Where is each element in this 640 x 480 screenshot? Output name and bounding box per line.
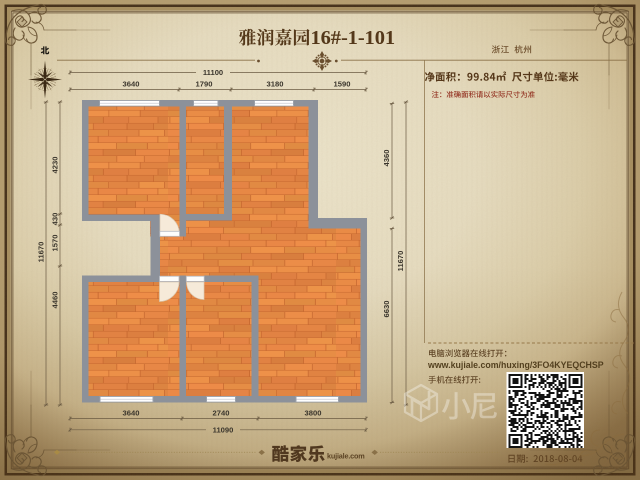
svg-text:www.kujiale.com/huxing/3FO4KYE: www.kujiale.com/huxing/3FO4KYEQCHSP <box>427 360 604 370</box>
svg-text:3180: 3180 <box>267 80 284 89</box>
svg-text:11100: 11100 <box>203 68 223 77</box>
svg-text:11670: 11670 <box>396 251 405 272</box>
svg-text:2740: 2740 <box>213 409 230 418</box>
svg-text:3640: 3640 <box>123 80 140 89</box>
svg-text:kujiale.com: kujiale.com <box>327 452 365 461</box>
svg-text:11090: 11090 <box>213 426 234 435</box>
svg-text:430: 430 <box>51 213 60 226</box>
svg-text:3800: 3800 <box>305 409 322 418</box>
svg-text:11670: 11670 <box>37 242 46 263</box>
svg-text:4460: 4460 <box>51 292 60 309</box>
svg-text:1790: 1790 <box>196 80 213 89</box>
svg-text:16#-1-101: 16#-1-101 <box>311 27 396 49</box>
svg-text:4230: 4230 <box>51 157 60 174</box>
svg-text:4360: 4360 <box>382 150 391 167</box>
svg-text:1570: 1570 <box>51 235 60 252</box>
svg-text:3640: 3640 <box>123 409 140 418</box>
svg-text:1590: 1590 <box>334 80 351 89</box>
svg-text:6630: 6630 <box>382 301 391 318</box>
